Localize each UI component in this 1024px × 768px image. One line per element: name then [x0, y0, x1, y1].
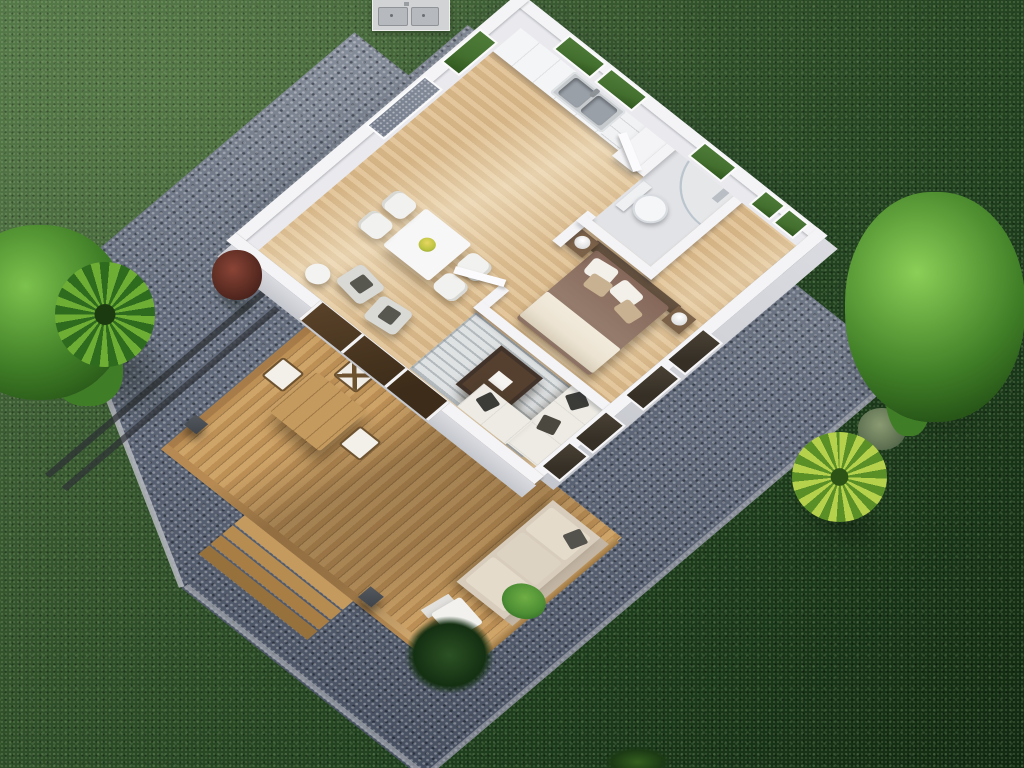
- right-yellow-palm: [792, 432, 887, 522]
- right-green-tree: [845, 192, 1024, 422]
- inset-drain: [390, 14, 393, 17]
- sink-detail-inset: [372, 0, 450, 31]
- left-palm-tree: [55, 262, 155, 367]
- aerial-scene: [0, 0, 1024, 768]
- bottom-bush: [595, 742, 680, 768]
- inset-basin: [378, 7, 408, 26]
- grass-tuft: [392, 605, 507, 705]
- inset-basin: [411, 7, 439, 26]
- inset-drain: [422, 14, 425, 17]
- red-shrub: [212, 250, 262, 300]
- inset-faucet: [404, 2, 409, 6]
